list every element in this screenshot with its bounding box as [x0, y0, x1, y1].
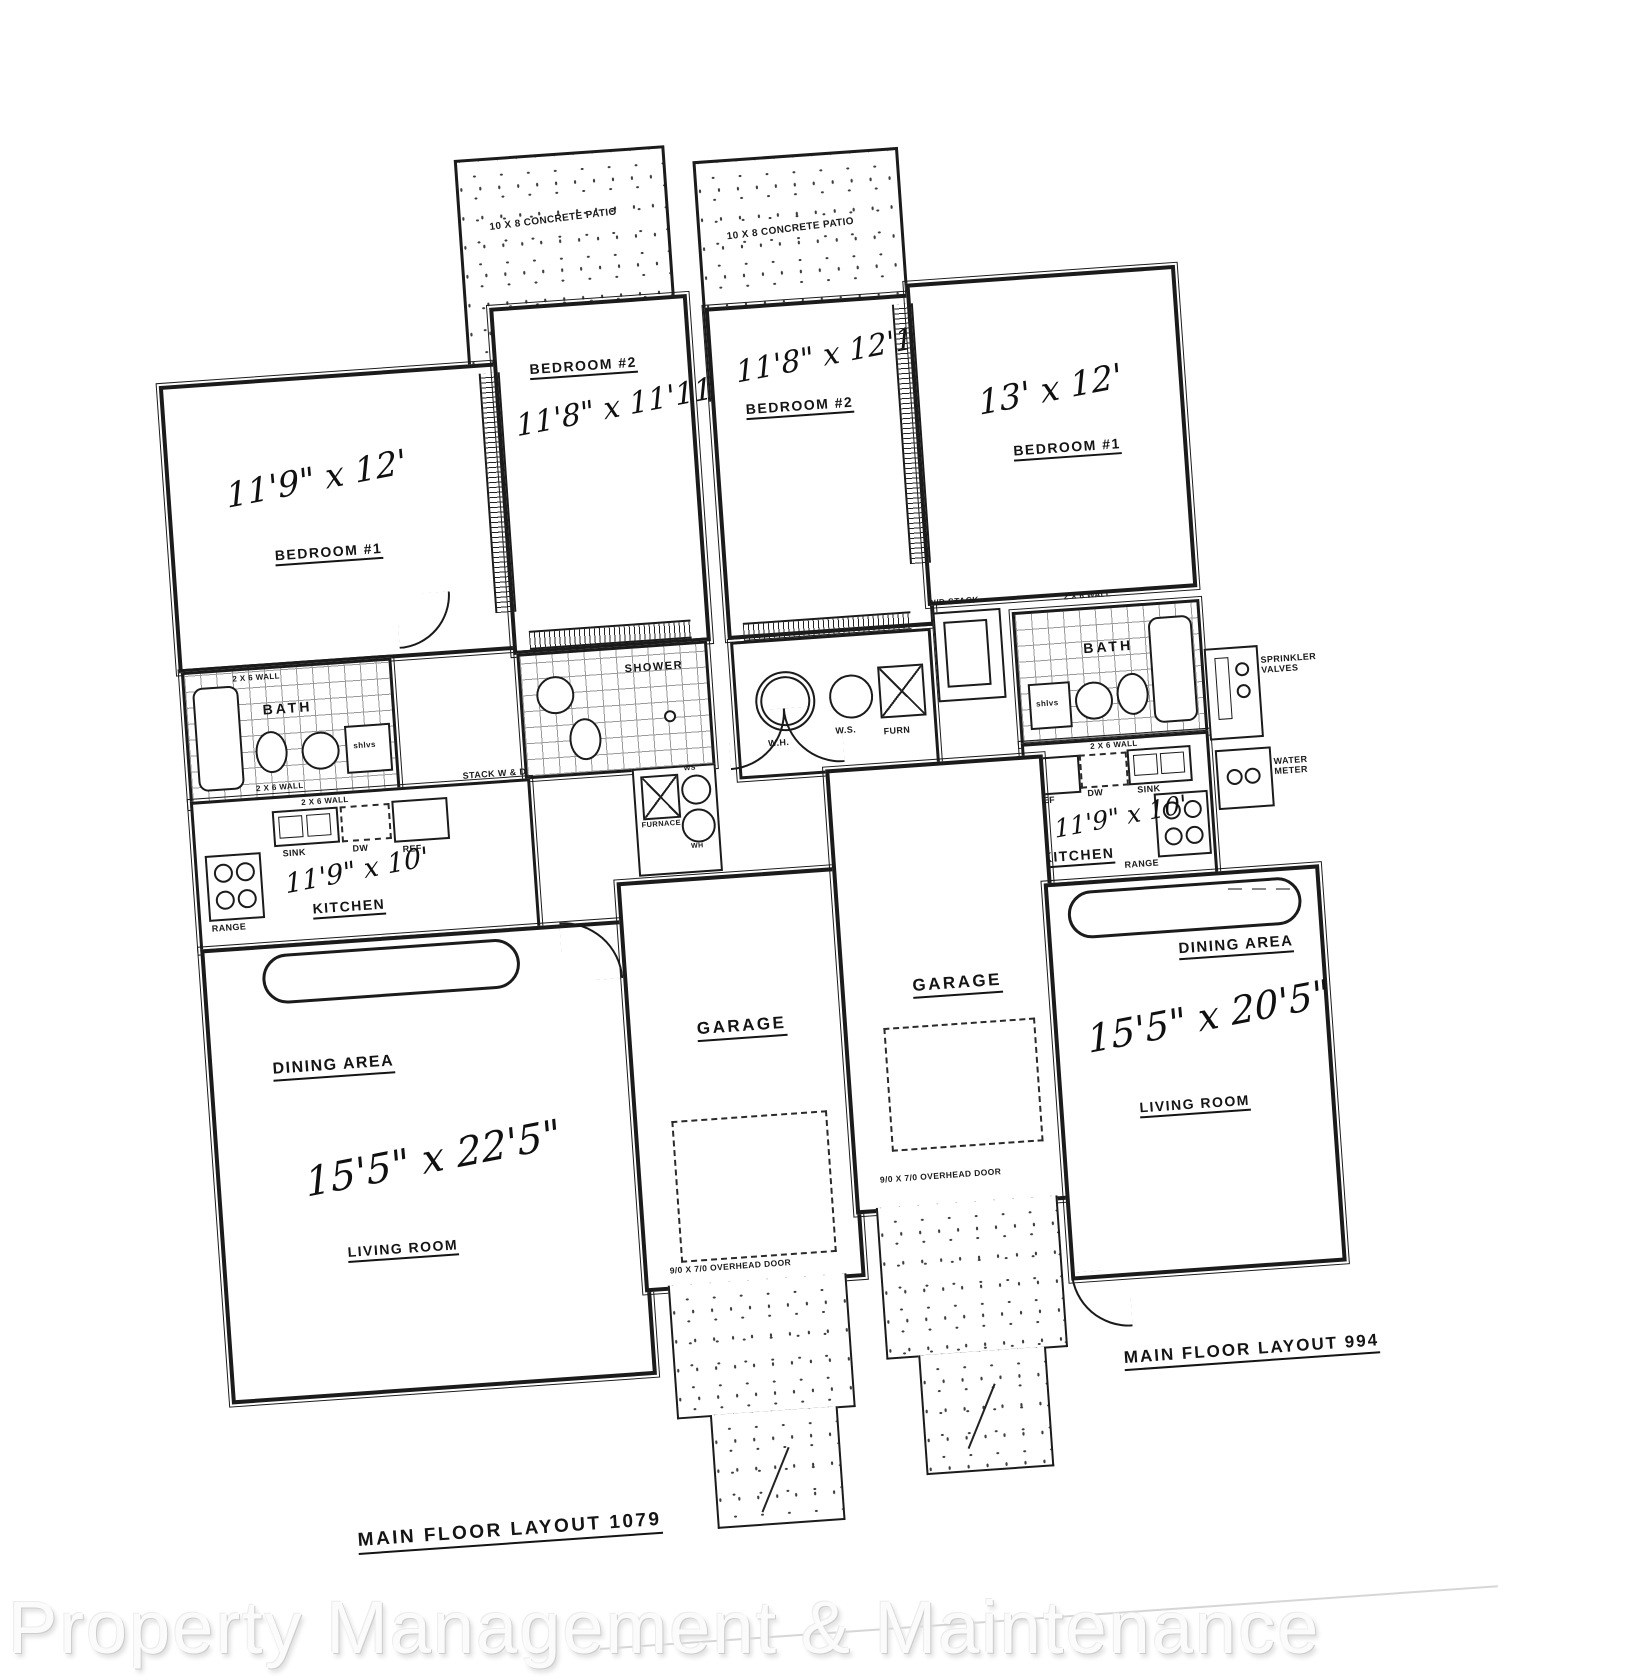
meter-dial-icon	[1226, 768, 1243, 785]
sink-basin-icon	[1074, 680, 1115, 721]
bedroom2-left-label: BEDROOM #2	[529, 354, 638, 380]
valve-icon	[1235, 662, 1250, 677]
furnace-left-label: FURNACE	[641, 818, 681, 830]
dishwasher-icon	[1079, 751, 1129, 788]
room-bath-right: BATH shlvs	[1012, 599, 1209, 746]
room-living-left: DINING AREA 15'5" x 22'5" LIVING ROOM	[200, 920, 657, 1405]
room-garage-left: GARAGE 9/0 X 7/0 OVERHEAD DOOR	[617, 867, 866, 1292]
valve-icon	[1236, 684, 1251, 699]
room-kitchen-left: 2 X 6 WALL SINK DW REF RANGE 11'9" x 10'…	[190, 778, 541, 952]
bath-right-label: BATH	[1083, 637, 1134, 656]
bedroom2-right-label: BEDROOM #2	[745, 394, 854, 420]
garage-left-parking-dashed	[671, 1110, 837, 1263]
living-left-dim: 15'5" x 22'5"	[304, 1111, 563, 1207]
bedroom1-left-label: BEDROOM #1	[274, 540, 383, 566]
room-bath2-left: SHOWER	[516, 640, 715, 779]
kitchen-right-range-label: RANGE	[1124, 857, 1159, 869]
wd-stack-closet	[932, 608, 1006, 703]
room-bedroom1-right: 13' x 12' BEDROOM #1	[905, 265, 1197, 606]
scanned-floor-plan-page: 10 X 8 CONCRETE PATIO 10 X 8 CONCRETE PA…	[0, 0, 1645, 1680]
water-heater-icon	[681, 807, 717, 843]
kitchen-left-dw-label: DW	[352, 843, 368, 854]
bathtub-icon	[1147, 615, 1198, 724]
burner-icon	[235, 862, 255, 882]
driveway-arrow-icon	[762, 1447, 790, 1513]
sink-basin-icon	[300, 730, 341, 771]
driveway-right-upper	[876, 1195, 1068, 1359]
kitchen-left-range-label: RANGE	[211, 921, 246, 933]
driveway-arrow-icon	[968, 1383, 996, 1449]
bedroom2-left-dim: 11'8" x 11'11"	[515, 368, 728, 444]
sprinkler-valves-box	[1204, 645, 1264, 741]
sprinkler-valves-label: SPRINKLER VALVES	[1260, 651, 1323, 675]
shelves-box-right: shlvs	[1028, 681, 1073, 730]
kitchen-right-dw-label: DW	[1087, 787, 1103, 798]
layout-label-right: MAIN FLOOR LAYOUT 994	[1123, 1330, 1380, 1371]
room-bedroom1-left: 11'9" x 12' BEDROOM #1	[159, 362, 521, 673]
toilet-icon	[1115, 672, 1150, 716]
shower-label: SHOWER	[624, 659, 683, 675]
water-meter-box	[1215, 746, 1275, 810]
bathtub-icon	[192, 685, 245, 792]
living-right-label: LIVING ROOM	[1139, 1092, 1251, 1119]
garage-left-label: GARAGE	[696, 1013, 787, 1042]
room-garage-right: GARAGE 9/0 X 7/0 OVERHEAD DOOR	[825, 754, 1074, 1214]
washer-dryer-icon	[943, 619, 991, 688]
living-right-dim: 15'5" x 20'5"	[1086, 971, 1332, 1062]
shelves-left-label: shlvs	[353, 740, 376, 751]
dining-right-label: DINING AREA	[1178, 932, 1294, 960]
bath-right-wall-note: 2 X 6 WALL	[1063, 589, 1111, 601]
kitchen-sink-icon	[1126, 745, 1192, 785]
garage-right-parking-dashed	[883, 1017, 1043, 1151]
living-left-label: LIVING ROOM	[347, 1236, 459, 1263]
kitchen-peninsula-counter	[261, 937, 522, 1005]
mech-closet-left: FURNACE WS WH	[632, 763, 723, 877]
bath-left-wall-note-top: 2 X 6 WALL	[232, 671, 280, 683]
dishwasher-icon	[340, 803, 392, 842]
water-softener-icon	[680, 774, 712, 806]
furnace-icon	[640, 774, 681, 821]
room-living-right: DINING AREA 15'5" x 20'5" LIVING ROOM	[1044, 864, 1347, 1280]
sink-bowl-icon	[278, 815, 303, 839]
toilet-icon	[254, 730, 289, 774]
driveway-left-lower	[710, 1406, 846, 1529]
bedroom1-right-label: BEDROOM #1	[1013, 435, 1122, 461]
furnace-icon	[877, 663, 927, 718]
kitchen-left-label: KITCHEN	[312, 896, 386, 920]
burner-icon	[1164, 827, 1183, 846]
garage-right-label: GARAGE	[912, 970, 1003, 999]
refrigerator-icon	[391, 797, 450, 843]
driveway-left-upper	[668, 1273, 856, 1419]
sink-basin-icon	[535, 675, 576, 716]
ws-left-label: WS	[684, 765, 697, 773]
bath-left-label: BATH	[262, 698, 313, 717]
kitchen-sink-icon	[272, 807, 340, 848]
kitchen-peninsula-counter	[1066, 876, 1303, 940]
kitchen-left-sink-label: SINK	[282, 847, 306, 859]
dining-left-label: DINING AREA	[272, 1052, 395, 1081]
watermark-text: Property Management & Maintenance	[8, 1585, 1320, 1670]
bedroom1-right-dim: 13' x 12'	[977, 356, 1124, 424]
burner-icon	[215, 890, 235, 910]
patio-left-label: 10 X 8 CONCRETE PATIO	[489, 206, 617, 233]
wd-stack-label: W/D STACK	[927, 594, 979, 608]
garage-right-overhead-door-label: 9/0 X 7/0 OVERHEAD DOOR	[880, 1166, 1002, 1184]
room-kitchen-right: 2 X 6 WALL REF DW SINK RANGE 11'9" x 10'…	[1021, 731, 1219, 888]
burner-icon	[1185, 825, 1204, 844]
burner-icon	[237, 889, 257, 909]
scan-dash-artifact	[1228, 888, 1300, 890]
room-bath-left: 2 X 6 WALL BATH shlvs 2 X 6 WALL	[181, 658, 401, 808]
shower-drain-icon	[664, 710, 677, 723]
toilet-icon	[568, 717, 603, 761]
layout-label-left: MAIN FLOOR LAYOUT 1079	[357, 1509, 663, 1555]
shelves-box-left: shlvs	[344, 723, 393, 774]
bedroom1-left-dim: 11'9" x 12'	[225, 442, 408, 517]
floor-plan-drawing: 10 X 8 CONCRETE PATIO 10 X 8 CONCRETE PA…	[132, 71, 1392, 1554]
wh-left-label: WH	[691, 842, 704, 850]
patio-right-label: 10 X 8 CONCRETE PATIO	[726, 216, 854, 243]
shelves-right-label: shlvs	[1036, 698, 1059, 709]
burner-icon	[213, 863, 233, 883]
driveway-right-lower	[918, 1347, 1054, 1476]
range-icon	[205, 852, 265, 922]
door-swing-arc	[1071, 1269, 1133, 1331]
sink-bowl-icon	[1160, 751, 1185, 774]
sink-bowl-icon	[306, 813, 331, 837]
valve-icon	[1214, 657, 1232, 720]
bath-left-wall-note-bottom: 2 X 6 WALL	[256, 781, 304, 793]
furnace-label: FURN	[883, 725, 910, 737]
water-meter-label: WATER METER	[1273, 753, 1324, 776]
room-bedroom2-left: BEDROOM #2 11'8" x 11'11"	[489, 294, 711, 655]
kitchen-right-label: KITCHEN	[1041, 845, 1115, 869]
meter-dial-icon	[1244, 767, 1261, 784]
sink-bowl-icon	[1133, 753, 1158, 776]
